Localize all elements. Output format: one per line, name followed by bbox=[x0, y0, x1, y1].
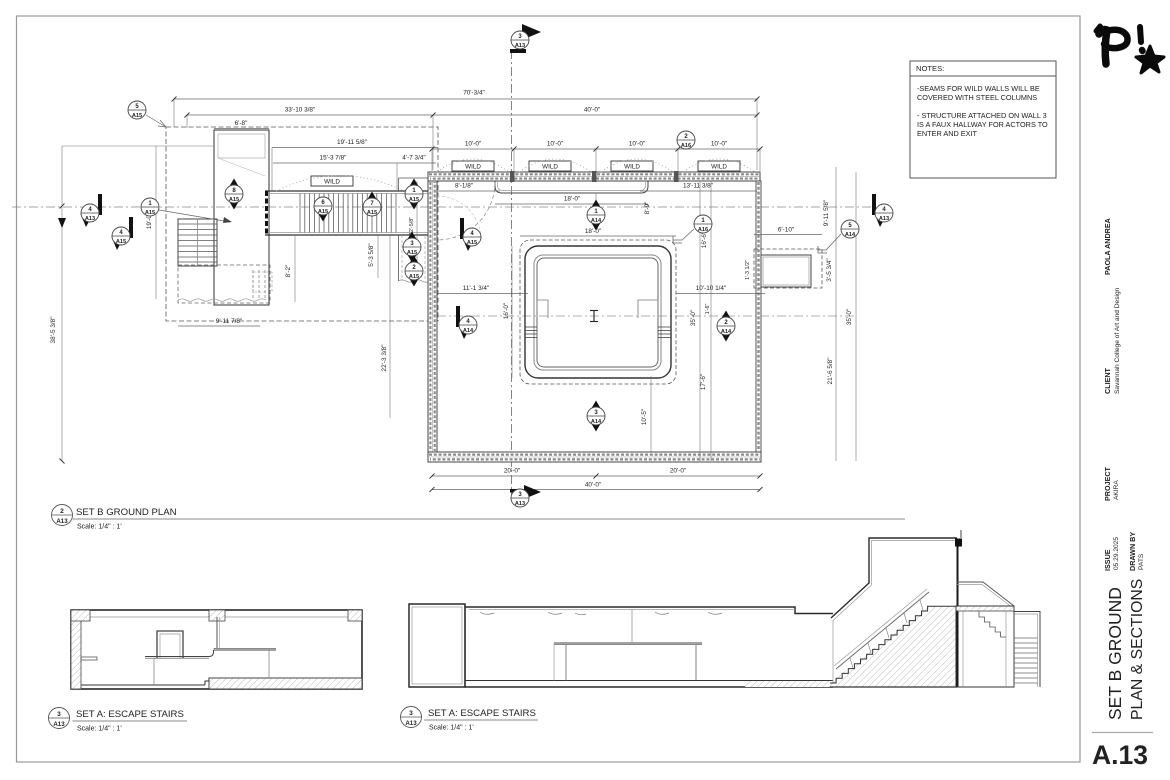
svg-text:15'-3 7/8": 15'-3 7/8" bbox=[320, 155, 347, 162]
svg-text:ENTER AND EXIT: ENTER AND EXIT bbox=[917, 129, 978, 138]
svg-text:4'-7 3/4": 4'-7 3/4" bbox=[402, 155, 425, 162]
svg-text:PAOLA ANDREA: PAOLA ANDREA bbox=[1103, 218, 1112, 275]
svg-text:10'-0": 10'-0" bbox=[711, 141, 727, 148]
svg-text:8'-1/8": 8'-1/8" bbox=[455, 183, 473, 190]
svg-text:A15: A15 bbox=[116, 239, 126, 245]
svg-text:PLAN & SECTIONS: PLAN & SECTIONS bbox=[1129, 579, 1146, 720]
svg-text:33'-10 3/8": 33'-10 3/8" bbox=[285, 107, 316, 114]
svg-text:A14: A14 bbox=[463, 328, 474, 334]
svg-text:19'-11 5/8": 19'-11 5/8" bbox=[337, 139, 367, 146]
svg-text:COVERED WITH STEEL COLUMNS: COVERED WITH STEEL COLUMNS bbox=[917, 93, 1037, 102]
svg-text:13'-11 3/8": 13'-11 3/8" bbox=[683, 183, 713, 190]
svg-text:A13: A13 bbox=[515, 501, 525, 507]
svg-text:22'-3 3/8": 22'-3 3/8" bbox=[381, 345, 388, 372]
svg-text:9'-11 7/8": 9'-11 7/8" bbox=[216, 318, 242, 325]
svg-text:10'-0": 10'-0" bbox=[629, 141, 645, 148]
svg-text:17'-6": 17'-6" bbox=[700, 374, 707, 390]
svg-text:10'-0": 10'-0" bbox=[547, 141, 563, 148]
svg-text:3'-5 3/4": 3'-5 3/4" bbox=[826, 258, 833, 281]
svg-text:A15: A15 bbox=[407, 250, 417, 256]
svg-text:16'-6": 16'-6" bbox=[701, 232, 708, 248]
svg-text:18'-0": 18'-0" bbox=[585, 228, 601, 235]
svg-text:PROJECT: PROJECT bbox=[1103, 466, 1112, 501]
svg-text:16'-0": 16'-0" bbox=[503, 303, 510, 319]
svg-text:8'-9": 8'-9" bbox=[644, 202, 651, 215]
svg-text:A15: A15 bbox=[367, 210, 377, 216]
svg-text:A13: A13 bbox=[879, 216, 889, 222]
svg-text:11'-1 3/4": 11'-1 3/4" bbox=[463, 285, 489, 292]
svg-text:A15: A15 bbox=[145, 210, 155, 216]
svg-text:A15: A15 bbox=[318, 209, 328, 215]
svg-text:35'-0": 35'-0" bbox=[690, 310, 697, 326]
svg-text:WILD: WILD bbox=[465, 164, 481, 171]
svg-text:10'-0": 10'-0" bbox=[465, 141, 481, 148]
svg-text:A13: A13 bbox=[53, 721, 65, 728]
svg-text:20'-0": 20'-0" bbox=[504, 468, 520, 475]
svg-text:A15: A15 bbox=[409, 197, 419, 203]
svg-text:21'-6 5/8": 21'-6 5/8" bbox=[827, 358, 834, 385]
svg-text:A15: A15 bbox=[229, 197, 239, 203]
svg-text:A14: A14 bbox=[591, 218, 602, 224]
svg-text:DRAWN BY: DRAWN BY bbox=[1128, 532, 1137, 571]
svg-text:NOTES:: NOTES: bbox=[916, 64, 944, 73]
svg-text:70'-3/4": 70'-3/4" bbox=[463, 90, 485, 97]
svg-text:-SEAMS FOR WILD WALLS WILL BE: -SEAMS FOR WILD WALLS WILL BE bbox=[917, 84, 1040, 93]
svg-text:A.13: A.13 bbox=[1092, 740, 1148, 770]
svg-text:A14: A14 bbox=[591, 419, 602, 425]
svg-text:A13: A13 bbox=[515, 43, 525, 49]
svg-text:9'-11 5/8": 9'-11 5/8" bbox=[823, 200, 830, 226]
svg-text:5'-3 5/8": 5'-3 5/8" bbox=[368, 243, 375, 266]
svg-text:A16: A16 bbox=[681, 143, 691, 149]
svg-text:A16: A16 bbox=[698, 227, 708, 233]
svg-text:SET B GROUND PLAN: SET B GROUND PLAN bbox=[76, 507, 177, 518]
svg-text:Scale: 1/4" : 1': Scale: 1/4" : 1' bbox=[77, 524, 122, 531]
svg-text:A15: A15 bbox=[132, 113, 142, 119]
svg-text:A13: A13 bbox=[405, 720, 417, 727]
svg-text:2: 2 bbox=[60, 508, 64, 515]
svg-text:ISSUE: ISSUE bbox=[1103, 549, 1112, 571]
svg-text:6'-10": 6'-10" bbox=[778, 227, 794, 234]
svg-text:A13: A13 bbox=[85, 216, 95, 222]
svg-text:A13: A13 bbox=[56, 518, 68, 525]
svg-text:- STRUCTURE ATTACHED ON WALL 3: - STRUCTURE ATTACHED ON WALL 3 bbox=[917, 111, 1047, 120]
svg-text:A14: A14 bbox=[721, 329, 732, 335]
svg-text:PATS: PATS bbox=[1138, 553, 1145, 570]
svg-text:3: 3 bbox=[57, 711, 61, 718]
svg-text:10'-10 1/4": 10'-10 1/4" bbox=[696, 285, 727, 292]
svg-text:10'-5": 10'-5" bbox=[641, 409, 648, 425]
svg-text:6'-8": 6'-8" bbox=[235, 120, 248, 127]
svg-text:A15: A15 bbox=[409, 274, 419, 280]
svg-text:18'-0": 18'-0" bbox=[564, 196, 580, 203]
svg-text:A14: A14 bbox=[845, 232, 856, 238]
svg-text:WILD: WILD bbox=[711, 164, 727, 171]
svg-text:Scale: 1/4" : 1': Scale: 1/4" : 1' bbox=[429, 725, 474, 732]
svg-text:WILD: WILD bbox=[324, 179, 340, 186]
svg-text:A15: A15 bbox=[467, 240, 477, 246]
svg-text:3: 3 bbox=[409, 710, 413, 717]
svg-text:20'-0": 20'-0" bbox=[670, 468, 686, 475]
svg-text:05.29.2025: 05.29.2025 bbox=[1113, 537, 1120, 570]
svg-text:SET A: ESCAPE STAIRS: SET A: ESCAPE STAIRS bbox=[428, 708, 536, 719]
svg-text:WILD: WILD bbox=[624, 164, 640, 171]
svg-text:SET B GROUND: SET B GROUND bbox=[1105, 587, 1125, 720]
svg-text:Scale: 1/4" : 1': Scale: 1/4" : 1' bbox=[77, 726, 122, 733]
svg-text:38'-5 3/8": 38'-5 3/8" bbox=[50, 317, 57, 344]
svg-text:AKIRA: AKIRA bbox=[1113, 480, 1120, 500]
svg-text:IS A FAUX HALLWAY FOR ACTORS T: IS A FAUX HALLWAY FOR ACTORS TO bbox=[917, 120, 1048, 129]
svg-text:8'-2": 8'-2" bbox=[285, 265, 292, 278]
svg-text:WILD: WILD bbox=[542, 164, 558, 171]
svg-text:1'-6": 1'-6" bbox=[705, 304, 711, 315]
svg-text:Savannah College of Art and De: Savannah College of Art and Design bbox=[1114, 287, 1121, 394]
svg-text:SET A: ESCAPE STAIRS: SET A: ESCAPE STAIRS bbox=[76, 709, 184, 720]
svg-text:40'-0": 40'-0" bbox=[585, 482, 601, 489]
svg-text:35'-0": 35'-0" bbox=[846, 309, 853, 325]
svg-text:1'-3 1/2": 1'-3 1/2" bbox=[745, 260, 751, 280]
svg-text:40'-0": 40'-0" bbox=[584, 107, 600, 114]
svg-text:CLIENT: CLIENT bbox=[1103, 367, 1112, 394]
